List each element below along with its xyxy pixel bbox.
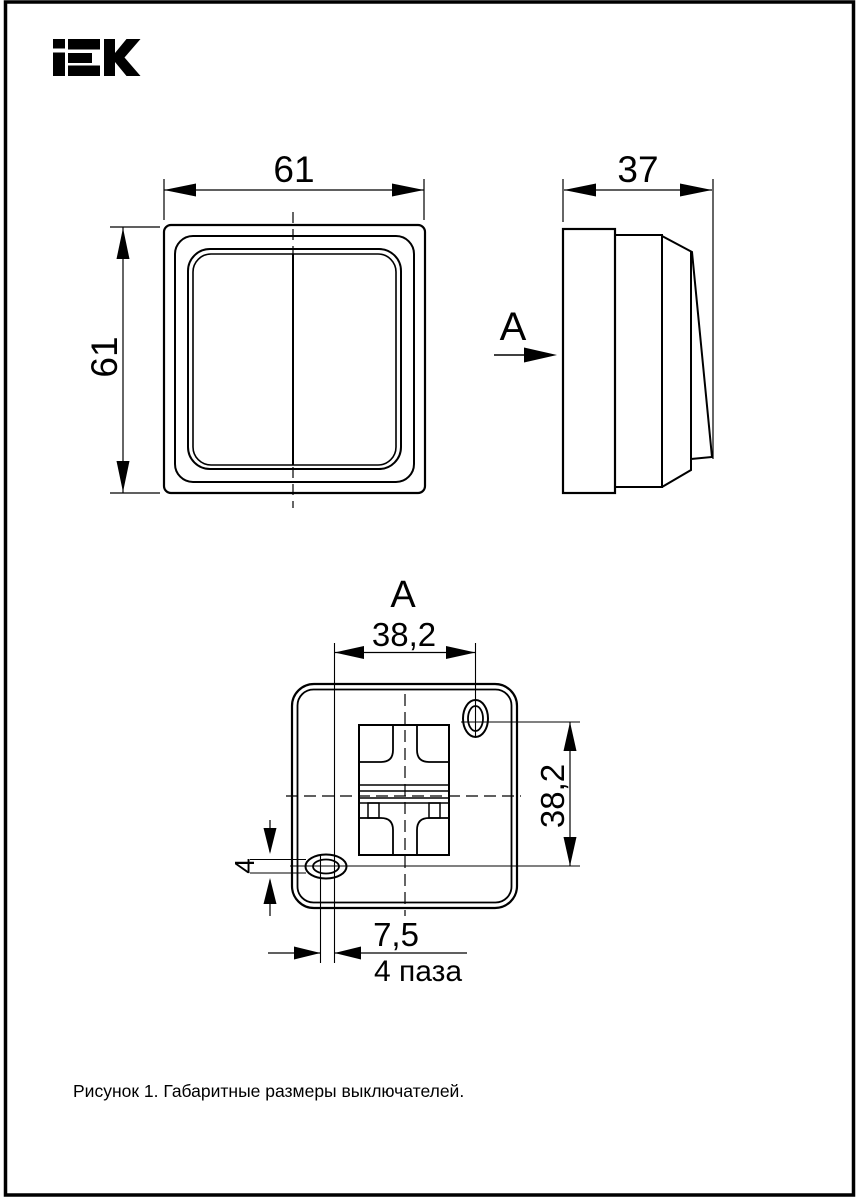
side-view: 37 А [494, 149, 713, 493]
side-base-block [563, 229, 615, 493]
dimension-arrow [392, 184, 424, 197]
slots-count-note: 4 паза [374, 955, 462, 988]
dimension-arrow [294, 947, 321, 960]
mechanism-notch-right [429, 803, 440, 818]
dim-slot-height-value: 4 [229, 858, 260, 874]
section-cut-arrowhead [524, 348, 557, 363]
logo-letter-i-dot [53, 39, 65, 49]
section-view-title: А [390, 574, 416, 616]
dimension-arrow [680, 184, 712, 197]
dimension-arrow [117, 228, 130, 259]
mechanism-recess-top-right [417, 725, 449, 762]
figure-caption: Рисунок 1. Габаритные размеры выключател… [73, 1081, 464, 1101]
dim-section-height: 38,2 [290, 722, 580, 866]
document-page: IEK 61 61 [0, 0, 856, 1200]
dimension-arrow [564, 184, 596, 197]
mechanism-notch-left [368, 803, 379, 818]
dim-front-width: 61 [164, 149, 424, 220]
dim-section-width-value: 38,2 [372, 616, 436, 653]
section-mechanism [359, 725, 449, 855]
dim-front-width-value: 61 [273, 149, 314, 190]
page-border [6, 2, 854, 1195]
dimension-arrow [264, 828, 277, 854]
section-cut-label: А [500, 305, 527, 349]
iek-logo: IEK [53, 39, 141, 76]
section-view: А [229, 574, 580, 988]
dimension-arrow [164, 184, 196, 197]
dim-front-height: 61 [84, 227, 160, 493]
logo-letter-k [104, 39, 141, 76]
front-view: 61 61 [84, 149, 425, 508]
dimension-arrow [117, 461, 130, 492]
side-rocker-profile [662, 236, 712, 487]
dimension-arrow [335, 947, 362, 960]
mechanism-recess-bottom-right [417, 818, 449, 855]
mechanism-recess-bottom-left [359, 818, 393, 855]
section-cut-indicator: А [494, 305, 557, 363]
dim-side-depth-value: 37 [617, 149, 658, 190]
dimension-arrow [446, 646, 476, 659]
dim-slot-height: 4 [229, 820, 306, 916]
logo-letter-e-bottom [68, 66, 100, 77]
logo-letter-e-top [68, 39, 100, 50]
front-rocker-face [193, 254, 396, 465]
logo-letter-i-stem [53, 53, 65, 77]
dim-slot-offset-value: 7,5 [373, 916, 419, 953]
dimension-arrow [564, 722, 577, 751]
front-rocker-bezel [188, 249, 401, 469]
dimension-arrow [564, 837, 577, 866]
dim-section-height-value: 38,2 [534, 764, 571, 828]
logo-letter-e-mid [68, 53, 92, 63]
dimension-arrow [335, 646, 365, 659]
front-inner-frame [175, 236, 414, 482]
technical-drawing: IEK 61 61 [0, 0, 856, 1200]
dimension-arrow [264, 878, 277, 904]
side-mid-block [615, 235, 662, 487]
mechanism-recess-top-left [359, 725, 393, 762]
dim-front-height-value: 61 [84, 336, 125, 377]
front-outer-frame [164, 225, 425, 493]
mechanism-outline [359, 725, 449, 855]
